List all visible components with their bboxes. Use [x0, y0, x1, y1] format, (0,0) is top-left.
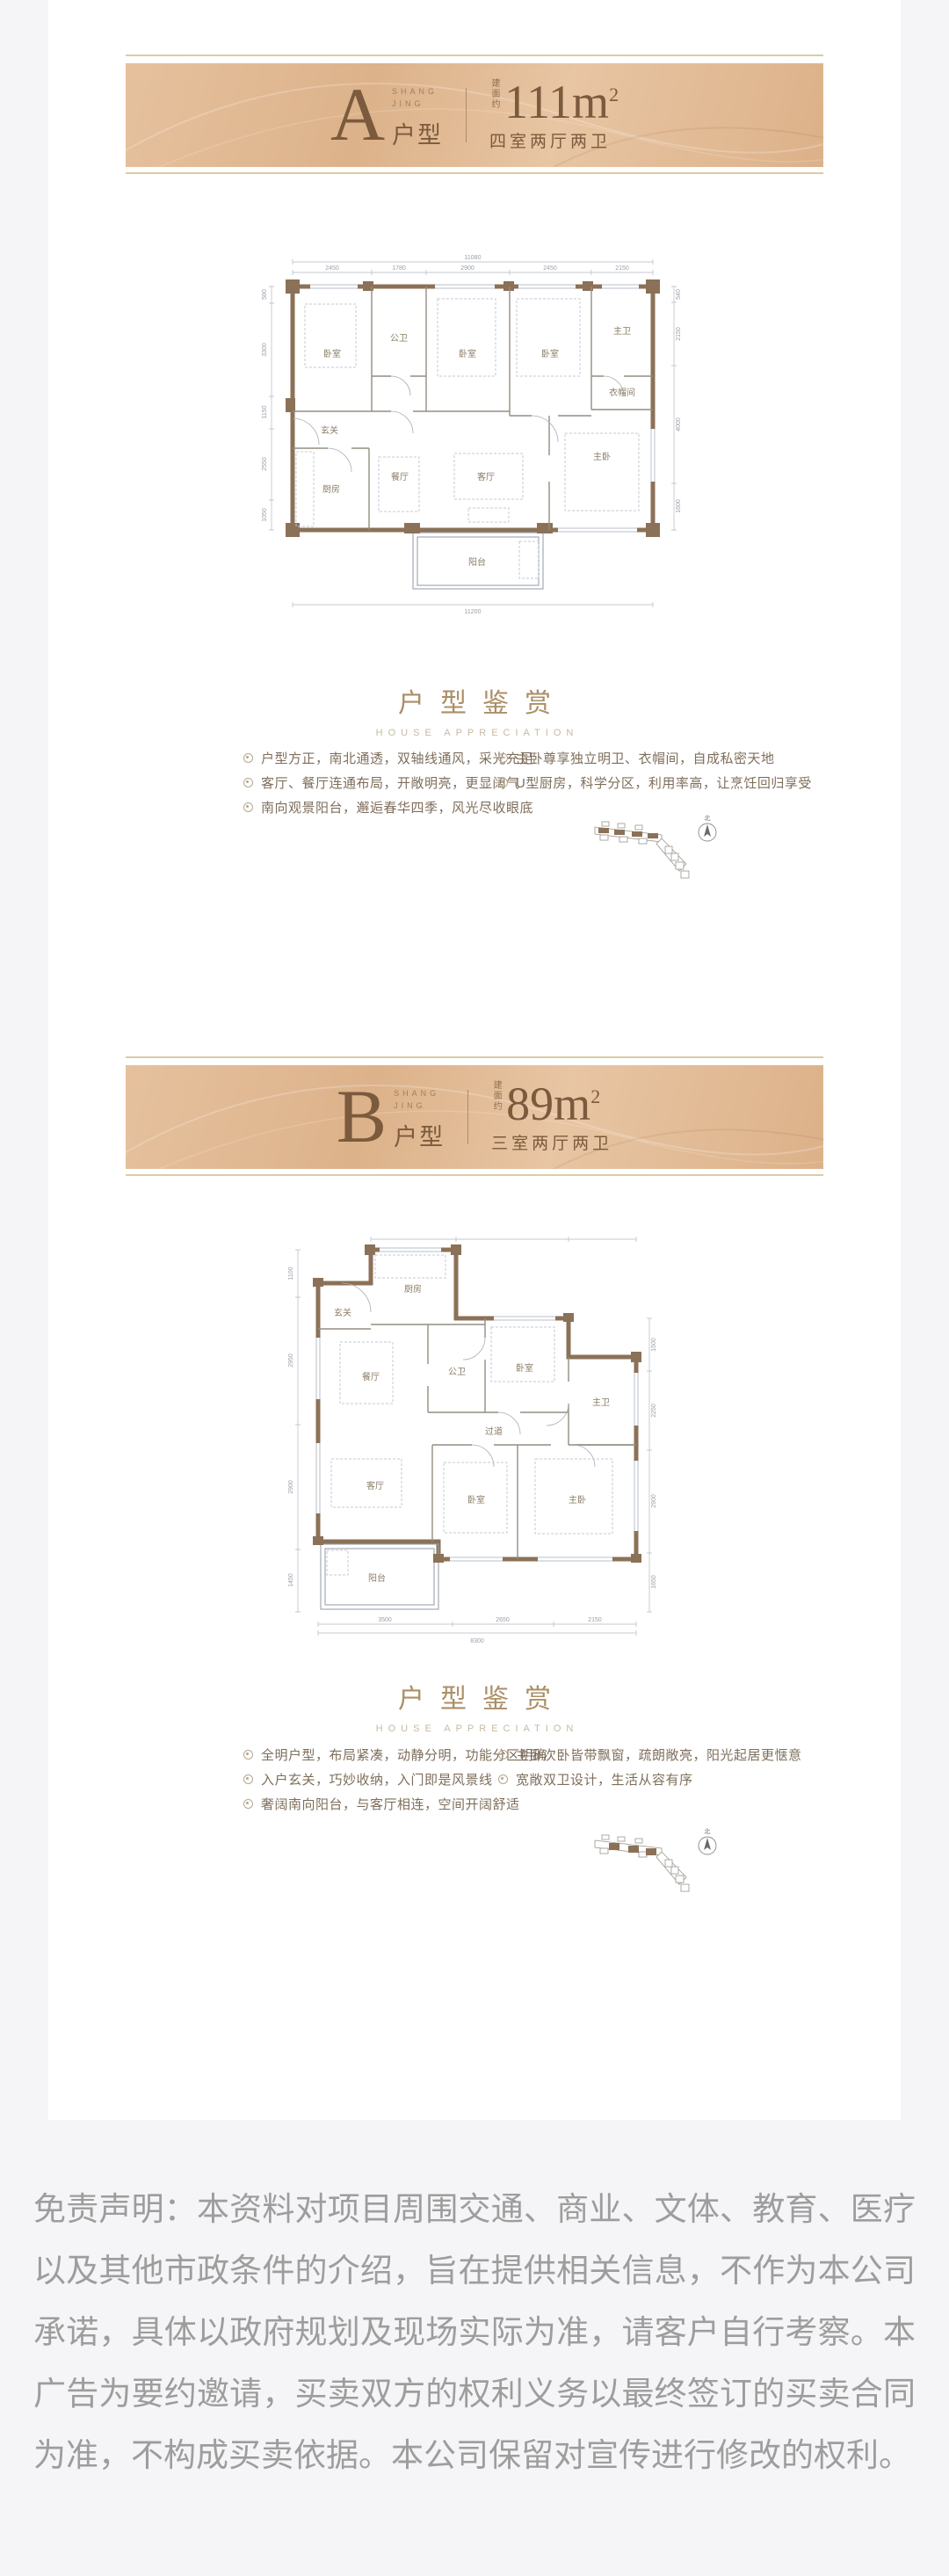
svg-text:2450: 2450 [325, 265, 339, 272]
svg-text:2150: 2150 [676, 327, 682, 341]
svg-text:2650: 2650 [496, 1617, 510, 1623]
room-label: 衣帽间 [609, 387, 635, 398]
bullet-dot-icon [498, 1774, 508, 1784]
highlighted-unit [598, 828, 609, 833]
highlighted-unit [632, 831, 642, 837]
appreciation-heading: 户型鉴赏 HOUSE APPRECIATION [48, 1677, 901, 1734]
highlighted-unit [614, 830, 625, 835]
divider-line [126, 1056, 823, 1058]
room-label: 卧室 [459, 348, 476, 359]
bullet-dot-icon [243, 1750, 253, 1760]
section-title: 户型鉴赏 [48, 1677, 901, 1716]
highlighted-unit [648, 833, 658, 838]
highlighted-unit [609, 1843, 619, 1850]
room-label: 阳台 [468, 556, 486, 568]
svg-text:1600: 1600 [676, 499, 682, 513]
area-superscript: 2 [590, 1085, 600, 1107]
svg-text:580: 580 [262, 289, 268, 300]
unit-type-group: SHANG JING 户型 [392, 80, 443, 150]
divider-line [126, 1174, 823, 1176]
list-item: 客厅、餐厅连通布局，开敞明亮，更显阔气 [243, 773, 533, 792]
bullet-dot-icon [243, 1799, 253, 1809]
section-subtitle: HOUSE APPRECIATION [48, 728, 901, 738]
feature-text: 主卧次卧皆带飘窗，疏朗敞亮，阳光起居更惬意 [516, 1745, 802, 1764]
feature-text: 主卧尊享独立明卫、衣帽间，自成私密天地 [516, 749, 775, 767]
compass-needle-icon [704, 824, 711, 837]
room-label: 公卫 [448, 1368, 466, 1377]
section-title: 户型鉴赏 [48, 681, 901, 720]
site-keyplan-a: 北 [584, 813, 729, 896]
compass-north-label: 北 [705, 1828, 711, 1835]
highlighted-unit [646, 1848, 656, 1855]
walls [286, 279, 660, 589]
svg-text:2550: 2550 [262, 457, 268, 471]
furniture [296, 299, 639, 578]
bullet-dot-icon [498, 778, 508, 787]
room-label: 厨房 [404, 1283, 422, 1295]
room-label: 主卧 [569, 1494, 586, 1506]
brand-english: SHANG JING [392, 86, 443, 110]
list-item: 奢阔南向阳台，与客厅相连，空间开阔舒适 [243, 1795, 547, 1813]
list-item: 主卧尊享独立明卫、衣帽间，自成私密天地 [498, 749, 812, 767]
room-label: 过道 [485, 1426, 503, 1437]
svg-text:2900: 2900 [460, 265, 474, 272]
feature-text: 客厅、餐厅连通布局，开敞明亮，更显阔气 [261, 773, 520, 792]
brand-english: SHANG JING [394, 1088, 445, 1112]
area-unit: m [554, 1078, 590, 1130]
feature-list-right: 主卧次卧皆带飘窗，疏朗敞亮，阳光起居更惬意 宽敞双卫设计，生活从容有序 [498, 1745, 802, 1795]
compass-north-label: 北 [705, 815, 711, 822]
windows [315, 1246, 640, 1563]
room-label: 餐厅 [391, 471, 409, 483]
list-item: 户型方正，南北通透，双轴线通风，采光充足 [243, 749, 533, 767]
floorplan-a-drawing: 11080 2450 1780 2900 2450 2150 11200 580… [259, 253, 690, 615]
walls [313, 1244, 641, 1609]
room-label: 客厅 [366, 1480, 384, 1491]
compass-needle-icon [704, 1838, 711, 1850]
feature-text: 南向观景阳台，邂逅春华四季，风光尽收眼底 [261, 798, 533, 816]
bullet-dot-icon [498, 1750, 508, 1760]
svg-text:2150: 2150 [588, 1617, 602, 1623]
list-item: 主卧次卧皆带飘窗，疏朗敞亮，阳光起居更惬意 [498, 1745, 802, 1764]
divider-line [126, 172, 823, 174]
svg-text:1100: 1100 [288, 1266, 294, 1280]
feature-text: U型厨房，科学分区，利用率高，让烹饪回归享受 [516, 773, 812, 792]
feature-list-right: 主卧尊享独立明卫、衣帽间，自成私密天地 U型厨房，科学分区，利用率高，让烹饪回归… [498, 749, 812, 798]
room-label: 卧室 [467, 1494, 485, 1506]
svg-text:2150: 2150 [615, 265, 629, 272]
area-group: 建面约 89m2 三室两厅两卫 [491, 1080, 612, 1154]
svg-text:1500: 1500 [651, 1338, 657, 1352]
room-label: 玄关 [321, 424, 338, 436]
area-value: 111m2 [504, 81, 619, 124]
doors [342, 1283, 595, 1467]
area-number: 111 [504, 76, 572, 128]
divider-line [126, 54, 823, 56]
room-label: 卧室 [323, 348, 341, 359]
svg-text:8300: 8300 [470, 1638, 484, 1644]
dimension-lines: 1100 2950 2900 1450 1500 2250 2900 1650 … [288, 1237, 657, 1644]
appreciation-heading: 户型鉴赏 HOUSE APPRECIATION [48, 681, 901, 738]
room-label: 玄关 [334, 1307, 351, 1318]
svg-text:4000: 4000 [676, 417, 682, 432]
highlighted-unit [628, 1846, 639, 1853]
unit-b-banner: B SHANG JING 户型 建面约 89m2 三室两厅两卫 [126, 1065, 823, 1169]
svg-text:2450: 2450 [543, 265, 557, 272]
area-group: 建面约 111m2 四室两厅两卫 [489, 78, 619, 152]
svg-text:2950: 2950 [288, 1353, 294, 1368]
banner-content: A SHANG JING 户型 建面约 111m2 四室两厅两卫 [330, 78, 619, 152]
area-value: 89m2 [506, 1083, 600, 1126]
unit-type-label: 户型 [392, 116, 443, 150]
site-keyplan-b: 北 [584, 1826, 729, 1910]
room-label: 主卫 [613, 326, 631, 337]
feature-text: 宽敞双卫设计，生活从容有序 [516, 1770, 693, 1789]
unit-letter: A [330, 83, 385, 148]
section-subtitle: HOUSE APPRECIATION [48, 1723, 901, 1734]
bullet-dot-icon [243, 778, 253, 787]
room-label: 公卫 [390, 334, 408, 344]
area-prefix-label: 建面约 [491, 1080, 501, 1119]
disclaimer-text: 免责声明：本资料对项目周围交通、商业、文体、教育、医疗以及其他市政条件的介绍，旨… [33, 2179, 916, 2486]
room-label: 卧室 [541, 348, 559, 359]
svg-text:1450: 1450 [288, 1573, 294, 1587]
list-item: 宽敞双卫设计，生活从容有序 [498, 1770, 802, 1789]
room-label: 阳台 [368, 1572, 386, 1584]
svg-text:3500: 3500 [378, 1617, 392, 1623]
room-layout-label: 四室两厅两卫 [489, 128, 619, 152]
svg-text:11200: 11200 [465, 609, 482, 615]
windows [310, 283, 656, 533]
content-card: A SHANG JING 户型 建面约 111m2 四室两厅两卫 [48, 0, 901, 2120]
room-label: 餐厅 [362, 1371, 380, 1382]
svg-text:2250: 2250 [651, 1404, 657, 1418]
feature-text: 入户玄关，巧妙收纳，入门即是风景线 [261, 1770, 493, 1789]
svg-text:1650: 1650 [651, 1575, 657, 1589]
unit-letter: B [337, 1085, 387, 1150]
svg-text:1780: 1780 [392, 265, 406, 272]
banner-divider [466, 88, 467, 142]
doors [293, 376, 624, 472]
area-prefix-label: 建面约 [489, 78, 499, 117]
feature-text: 奢阔南向阳台，与客厅相连，空间开阔舒适 [261, 1795, 520, 1813]
area-unit: m [572, 76, 609, 128]
svg-text:540: 540 [676, 289, 682, 300]
bullet-dot-icon [243, 1774, 253, 1784]
svg-text:1050: 1050 [262, 508, 268, 522]
room-label: 主卫 [592, 1397, 610, 1408]
svg-text:2900: 2900 [288, 1480, 294, 1494]
bullet-dot-icon [498, 753, 508, 763]
list-item: 南向观景阳台，邂逅春华四季，风光尽收眼底 [243, 798, 533, 816]
banner-divider [467, 1090, 468, 1144]
banner-content: B SHANG JING 户型 建面约 89m2 三室两厅两卫 [337, 1080, 612, 1154]
area-number: 89 [506, 1078, 554, 1130]
unit-type-group: SHANG JING 户型 [394, 1082, 445, 1152]
svg-text:3300: 3300 [262, 343, 268, 357]
room-label: 厨房 [322, 483, 340, 495]
feature-list-left: 户型方正，南北通透，双轴线通风，采光充足 客厅、餐厅连通布局，开敞明亮，更显阔气… [243, 749, 533, 823]
room-layout-label: 三室两厅两卫 [491, 1130, 612, 1154]
unit-a-banner: A SHANG JING 户型 建面约 111m2 四室两厅两卫 [126, 63, 823, 167]
area-superscript: 2 [609, 83, 619, 105]
feature-text: 户型方正，南北通透，双轴线通风，采光充足 [261, 749, 533, 767]
floorplan-b-drawing: 1100 2950 2900 1450 1500 2250 2900 1650 … [287, 1232, 661, 1647]
svg-text:1150: 1150 [262, 405, 268, 418]
room-label: 卧室 [516, 1362, 533, 1374]
svg-text:2900: 2900 [651, 1494, 657, 1508]
unit-type-label: 户型 [394, 1118, 445, 1152]
room-label: 客厅 [477, 471, 495, 483]
room-label: 主卧 [593, 451, 611, 462]
bullet-dot-icon [243, 753, 253, 763]
list-item: U型厨房，科学分区，利用率高，让烹饪回归享受 [498, 773, 812, 792]
brochure-page: A SHANG JING 户型 建面约 111m2 四室两厅两卫 [0, 0, 949, 2576]
bullet-dot-icon [243, 802, 253, 812]
svg-text:11080: 11080 [465, 255, 482, 261]
